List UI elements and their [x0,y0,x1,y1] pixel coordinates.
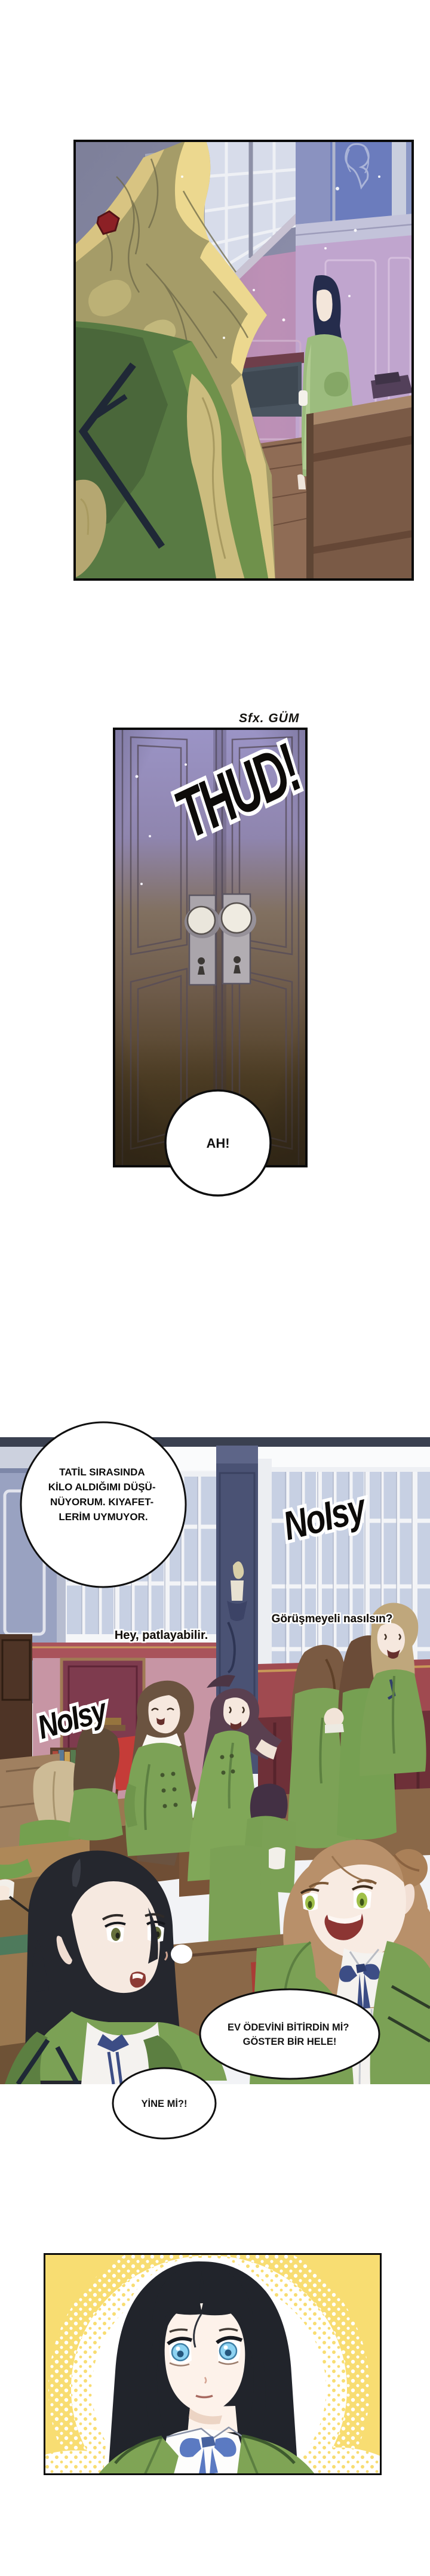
svg-text:YİNE Mİ?!: YİNE Mİ?! [142,2099,188,2109]
svg-text:Görüşmeyeli nasılsın?: Görüşmeyeli nasılsın? [272,1613,393,1625]
svg-text:Hey, patlayabilir.: Hey, patlayabilir. [115,1629,208,1642]
svg-text:AH!: AH! [206,1136,229,1151]
